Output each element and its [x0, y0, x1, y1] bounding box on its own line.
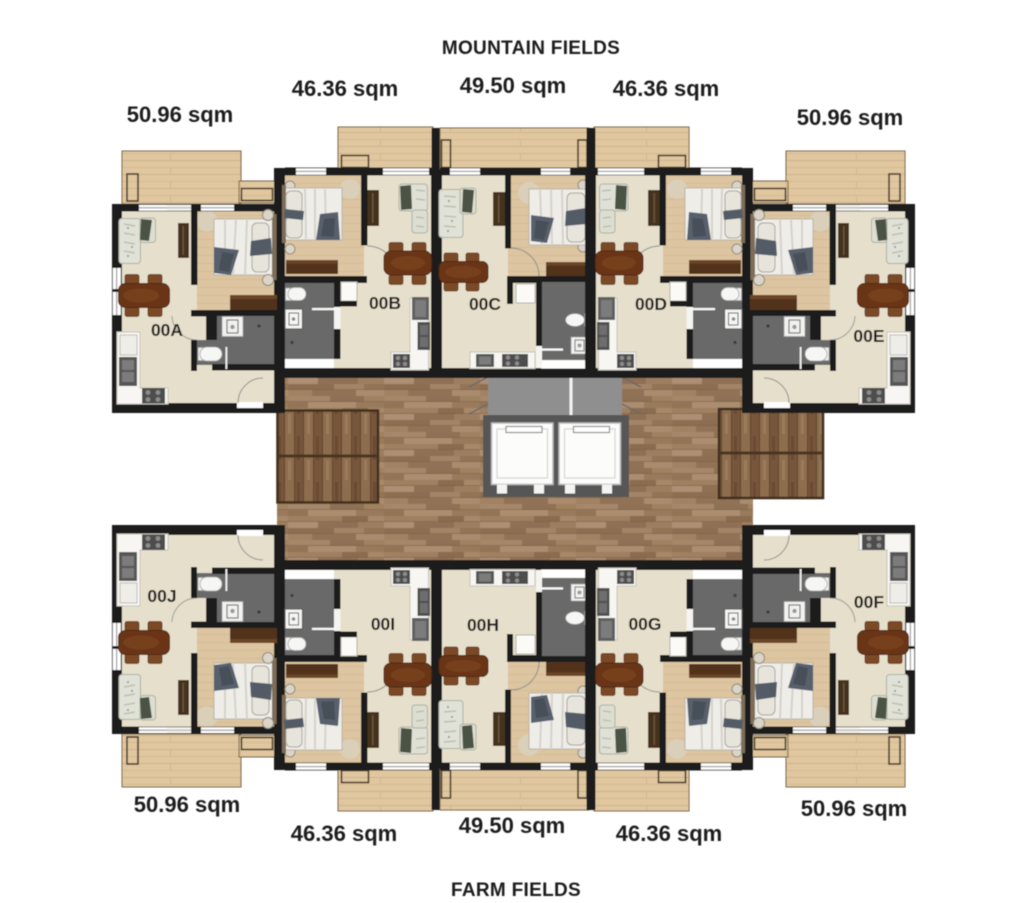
svg-text:FARM FIELDS: FARM FIELDS — [451, 880, 581, 901]
svg-text:50.96 sqm: 50.96 sqm — [127, 102, 233, 127]
svg-text:00J: 00J — [147, 586, 176, 606]
svg-text:46.36 sqm: 46.36 sqm — [616, 821, 722, 846]
svg-text:00B: 00B — [369, 293, 401, 313]
svg-text:46.36 sqm: 46.36 sqm — [613, 76, 719, 101]
svg-text:00C: 00C — [469, 294, 501, 314]
svg-text:00H: 00H — [467, 615, 499, 635]
svg-text:50.96 sqm: 50.96 sqm — [134, 792, 240, 817]
svg-text:00D: 00D — [635, 294, 667, 314]
svg-text:49.50 sqm: 49.50 sqm — [460, 73, 566, 98]
svg-text:50.96 sqm: 50.96 sqm — [797, 105, 903, 130]
svg-text:46.36 sqm: 46.36 sqm — [291, 821, 397, 846]
svg-text:50.96 sqm: 50.96 sqm — [801, 796, 907, 821]
svg-text:00F: 00F — [854, 592, 884, 612]
svg-text:49.50 sqm: 49.50 sqm — [459, 813, 565, 838]
svg-text:00A: 00A — [151, 320, 183, 340]
svg-text:MOUNTAIN FIELDS: MOUNTAIN FIELDS — [442, 38, 620, 59]
svg-text:00I: 00I — [371, 614, 395, 634]
svg-text:00E: 00E — [853, 326, 884, 346]
svg-text:46.36 sqm: 46.36 sqm — [292, 76, 398, 101]
svg-text:00G: 00G — [628, 614, 661, 634]
